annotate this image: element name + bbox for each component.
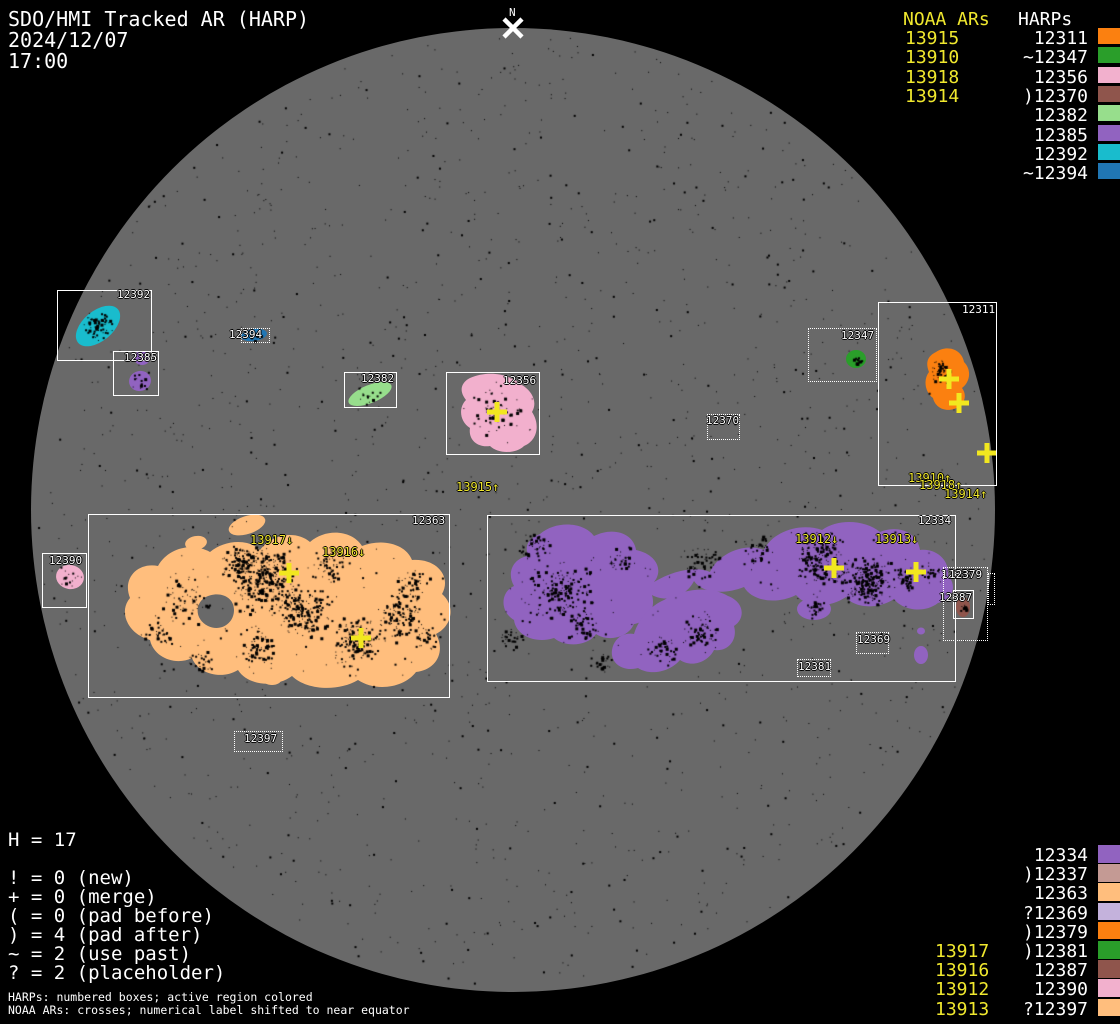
noaa-ar-disk-label-13913: 13913↓ bbox=[875, 533, 918, 545]
harp-box-label-12392: 12392 bbox=[117, 289, 150, 300]
harp-color-swatch bbox=[1098, 125, 1120, 141]
harp-box-label-12390: 12390 bbox=[49, 555, 82, 566]
north-pole-label: N bbox=[509, 7, 516, 18]
harp-list-item: 12387 bbox=[1000, 962, 1088, 980]
noaa-ar-disk-label-13914: 13914↑ bbox=[944, 488, 987, 500]
harp-color-swatch bbox=[1098, 105, 1120, 121]
harp-list-item: 12356 bbox=[1000, 69, 1088, 87]
harp-list-item: )12370 bbox=[1000, 88, 1088, 106]
markers-layer bbox=[0, 0, 1120, 1024]
noaa-ar-list-item: 13912 bbox=[935, 981, 989, 999]
harp-color-swatch bbox=[1098, 999, 1120, 1017]
harp-list-item: ?12369 bbox=[1000, 905, 1088, 923]
harp-box-label-12334: 12334 bbox=[918, 515, 951, 526]
harp-list-item: )12379 bbox=[1000, 924, 1088, 942]
harp-box-12311 bbox=[878, 302, 997, 486]
harp-color-swatch bbox=[1098, 86, 1120, 102]
harp-box-label-12394: 12394 bbox=[229, 329, 262, 340]
noaa-ar-list-item: 13910 bbox=[905, 49, 959, 67]
harp-box-label-12363: 12363 bbox=[412, 515, 445, 526]
harp-box-label-12311: 12311 bbox=[962, 304, 995, 315]
noaa-ar-list-item: 13918 bbox=[905, 69, 959, 87]
harp-list-item: 12390 bbox=[1000, 981, 1088, 999]
harp-box-label-12370: 12370 bbox=[706, 415, 739, 426]
noaa-ar-disk-label-13912: 13912↓ bbox=[795, 533, 838, 545]
harp-color-swatch bbox=[1098, 922, 1120, 940]
harp-list-item: 12392 bbox=[1000, 146, 1088, 164]
harp-list-item: )12337 bbox=[1000, 866, 1088, 884]
harp-tracking-plot: SDO/HMI Tracked AR (HARP) 2024/12/07 17:… bbox=[0, 0, 1120, 1024]
harp-list-item: )12381 bbox=[1000, 943, 1088, 961]
harp-box-label-12397: 12397 bbox=[244, 733, 277, 744]
harp-color-swatch bbox=[1098, 960, 1120, 978]
noaa-ar-list-item: 13917 bbox=[935, 943, 989, 961]
harp-box-label-12356: 12356 bbox=[503, 375, 536, 386]
harp-list-item: ~12347 bbox=[1000, 49, 1088, 67]
harp-box-12337 bbox=[988, 573, 995, 605]
harp-list-item: 12311 bbox=[1000, 30, 1088, 48]
harp-list-item: 12363 bbox=[1000, 885, 1088, 903]
harp-box-label-12387: 12387 bbox=[939, 592, 972, 603]
harp-list-item: ~12394 bbox=[1000, 165, 1088, 183]
harp-box-label-12347: 12347 bbox=[841, 330, 874, 341]
noaa-ar-list-item: 13915 bbox=[905, 30, 959, 48]
harp-color-swatch bbox=[1098, 144, 1120, 160]
harp-list-item: 12334 bbox=[1000, 847, 1088, 865]
harp-color-swatch bbox=[1098, 67, 1120, 83]
harp-box-label-12369: 12369 bbox=[857, 634, 890, 645]
harp-box-label-12382: 12382 bbox=[361, 373, 394, 384]
harp-color-swatch bbox=[1098, 903, 1120, 921]
harp-list-item: 12382 bbox=[1000, 107, 1088, 125]
harp-color-swatch bbox=[1098, 864, 1120, 882]
noaa-ar-disk-label-13915: 13915↑ bbox=[456, 481, 499, 493]
harp-color-swatch bbox=[1098, 883, 1120, 901]
noaa-ar-list-item: 13913 bbox=[935, 1001, 989, 1019]
harp-box-label-12379: 12379 bbox=[949, 569, 982, 580]
harp-list-item: 12385 bbox=[1000, 127, 1088, 145]
noaa-ar-disk-label-13916: 13916↓ bbox=[322, 546, 365, 558]
noaa-ar-disk-label-13917: 13917↓ bbox=[250, 534, 293, 546]
harp-color-swatch bbox=[1098, 979, 1120, 997]
noaa-ar-list-item: 13916 bbox=[935, 962, 989, 980]
harp-color-swatch bbox=[1098, 163, 1120, 179]
harp-box-label-12385: 12385 bbox=[124, 352, 157, 363]
harp-color-swatch bbox=[1098, 47, 1120, 63]
harp-color-swatch bbox=[1098, 845, 1120, 863]
harp-box-label-12381: 12381 bbox=[798, 661, 831, 672]
noaa-ar-list-item: 13914 bbox=[905, 88, 959, 106]
harp-color-swatch bbox=[1098, 941, 1120, 959]
harp-list-item: ?12397 bbox=[1000, 1001, 1088, 1019]
harp-color-swatch bbox=[1098, 28, 1120, 44]
